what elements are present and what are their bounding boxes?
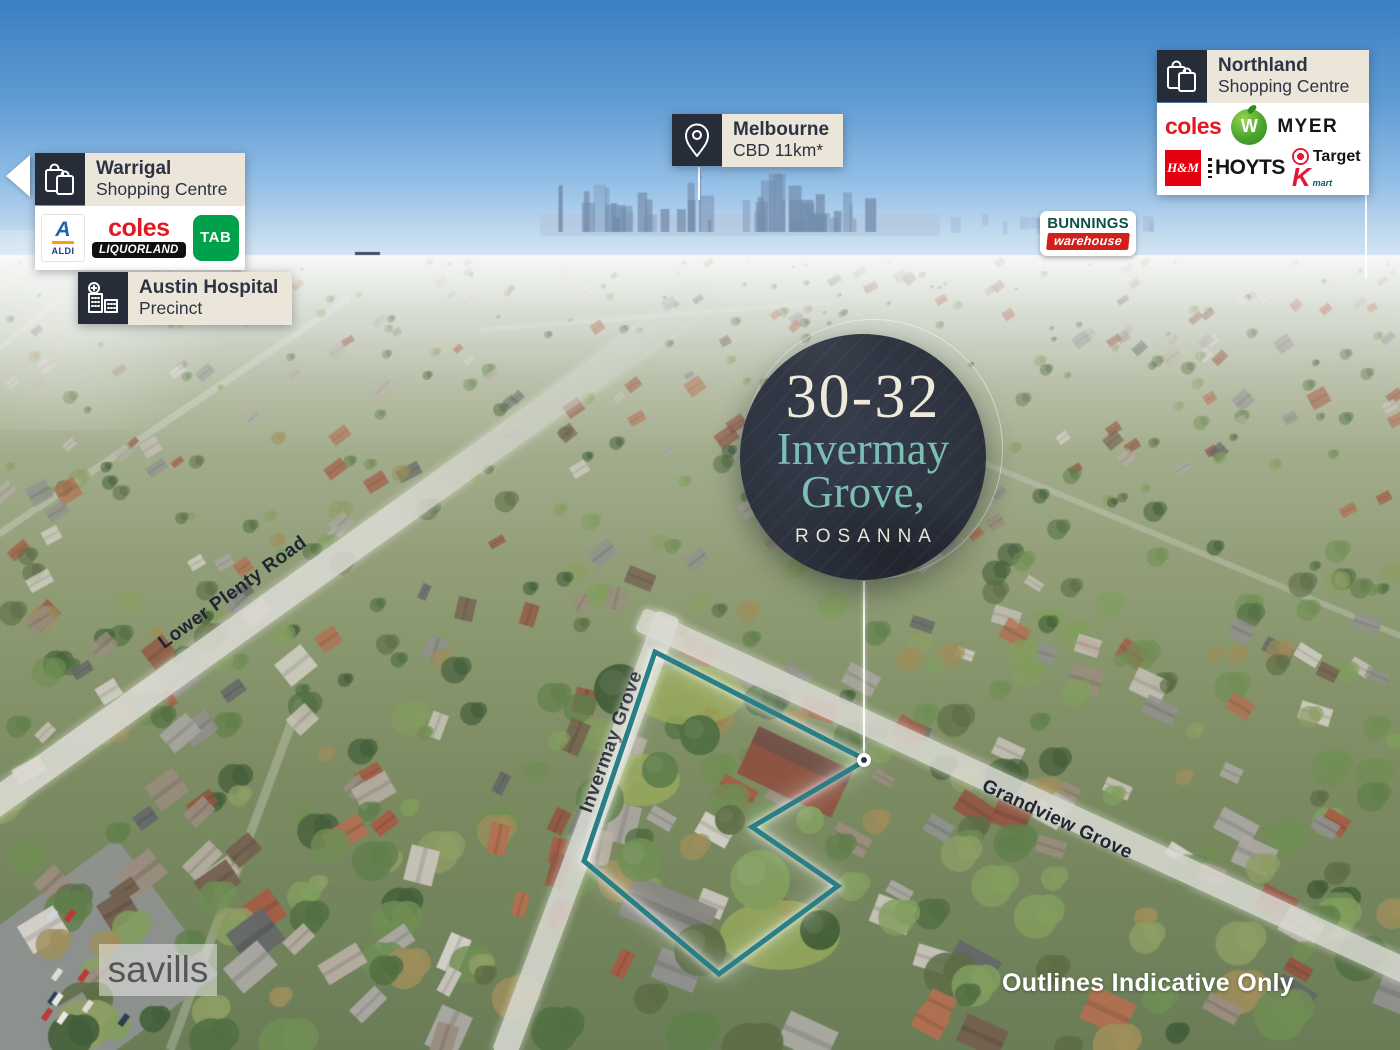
coles-logo: coles [108, 217, 169, 240]
outline-disclaimer: Outlines Indicative Only [1002, 969, 1294, 998]
badge-pointer-line [863, 581, 865, 754]
coles-logo: coles [1165, 116, 1221, 137]
property-badge: 30-32 Invermay Grove, ROSANNA [740, 334, 986, 580]
hoyts-logo: HOYTS [1208, 156, 1285, 180]
kmart-logo: K mart [1292, 167, 1332, 188]
badge-street-name-line2: Grove, [801, 471, 925, 514]
callout-subtitle: Shopping Centre [1218, 77, 1355, 97]
melbourne-pointer-line [698, 167, 700, 200]
callout-subtitle: CBD 11km* [733, 141, 829, 161]
carousel-prev-arrow-icon[interactable] [6, 155, 30, 197]
aldi-mark: A [52, 219, 73, 244]
callout-title: Warrigal [96, 158, 231, 180]
callout-austin-hospital: Austin Hospital Precinct [78, 272, 292, 325]
shopping-bags-icon [35, 153, 85, 205]
badge-street-number: 30-32 [786, 366, 941, 428]
shopping-bags-icon [1157, 50, 1207, 102]
myer-logo: MYER [1277, 116, 1338, 138]
callout-label: Melbourne CBD 11km* [722, 114, 843, 167]
callout-title: Austin Hospital [139, 277, 278, 299]
coles-liquorland-logo: coles LIQUORLAND [92, 217, 186, 258]
woolworths-logo: W [1231, 109, 1267, 145]
callout-warrigal-shopping-centre: Warrigal Shopping Centre A ALDI coles LI… [35, 153, 245, 270]
warrigal-logo-strip: A ALDI coles LIQUORLAND TAB [35, 206, 245, 270]
northland-logo-strip: coles W MYER H&M HOYTS Target K [1157, 103, 1369, 195]
bunnings-warehouse-logo: BUNNINGS warehouse [1040, 211, 1136, 256]
callout-label: Austin Hospital Precinct [128, 272, 292, 325]
aerial-marketing-map: Lower Plenty Road Invermay Grove Grandvi… [0, 0, 1400, 1050]
tab-logo: TAB [193, 215, 239, 261]
badge-suburb: ROSANNA [788, 526, 938, 548]
property-marker-dot [857, 753, 871, 767]
callout-subtitle: Shopping Centre [96, 180, 231, 200]
badge-street-name-line1: Invermay [777, 428, 949, 471]
hm-logo: H&M [1165, 150, 1201, 186]
callout-label: Warrigal Shopping Centre [85, 153, 245, 206]
liquorland-logo: LIQUORLAND [92, 242, 186, 258]
target-kmart-column: Target K mart [1292, 148, 1361, 188]
hoyts-dots [1208, 158, 1212, 178]
savills-watermark: savills [99, 944, 217, 996]
aldi-logo: A ALDI [41, 214, 85, 262]
hospital-icon [78, 272, 128, 324]
callout-subtitle: Precinct [139, 299, 278, 319]
callout-melbourne-cbd: Melbourne CBD 11km* [672, 114, 843, 167]
northland-pointer-line [1365, 181, 1367, 278]
callout-label: Northland Shopping Centre [1207, 50, 1369, 103]
northland-logo-row1: coles W MYER [1165, 109, 1361, 145]
location-pin-icon [672, 114, 722, 166]
callout-title: Melbourne [733, 119, 829, 141]
callout-title: Northland [1218, 55, 1355, 77]
northland-logo-row2: H&M HOYTS Target K mart [1165, 148, 1361, 188]
callout-northland-shopping-centre: Northland Shopping Centre coles W MYER H… [1157, 50, 1369, 195]
